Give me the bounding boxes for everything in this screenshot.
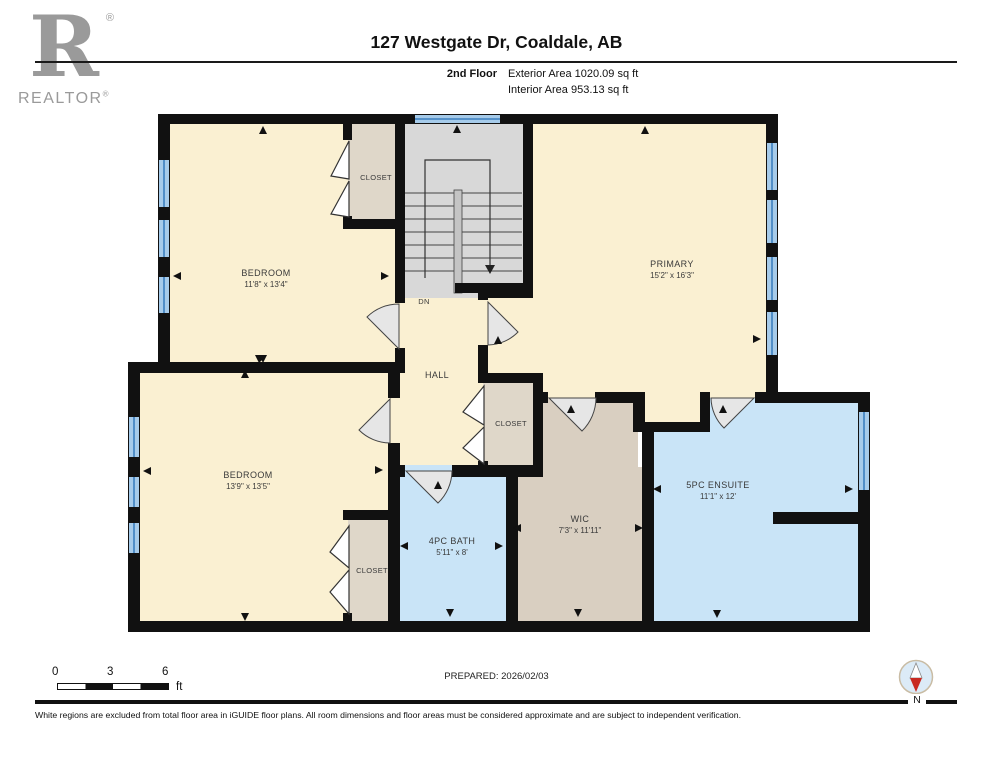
label-bedroom-top: BEDROOM: [241, 268, 290, 278]
scale-bar: [57, 683, 169, 690]
label-closet-hall: CLOSET: [495, 419, 527, 428]
dims-wic: 7'3" x 11'11": [559, 526, 602, 535]
dims-ensuite: 11'1" x 12': [700, 492, 736, 501]
floor-plan-drawing: BEDROOM 11'8" x 13'4" PRIMARY 15'2" x 16…: [0, 0, 993, 768]
label-ensuite: 5PC ENSUITE: [686, 480, 749, 490]
label-bedroom-bottom: BEDROOM: [223, 470, 272, 480]
scale-unit: ft: [176, 681, 182, 693]
prepared-date: PREPARED: 2026/02/03: [0, 671, 993, 682]
dims-bedroom-top: 11'8" x 13'4": [244, 280, 287, 289]
north-label: N: [908, 694, 926, 706]
dims-bath: 5'11" x 8': [436, 548, 468, 557]
dims-bedroom-bottom: 13'9" x 13'5": [226, 482, 270, 491]
label-bath: 4PC BATH: [429, 536, 476, 546]
label-primary: PRIMARY: [650, 259, 694, 269]
label-closet-bottom: CLOSET: [356, 566, 388, 575]
dims-primary: 15'2" x 16'3": [650, 271, 694, 280]
label-closet-top: CLOSET: [360, 173, 392, 182]
footer-divider: [35, 700, 957, 704]
label-hall: HALL: [425, 370, 449, 380]
compass-icon: [897, 658, 937, 698]
label-wic: WIC: [571, 514, 590, 524]
disclaimer-text: White regions are excluded from total fl…: [35, 710, 965, 720]
stair-stringer: [454, 190, 462, 293]
label-stairs-down: DN: [418, 297, 429, 306]
floor-plan-page: R ® REALTOR® 127 Westgate Dr, Coaldale, …: [0, 0, 993, 768]
